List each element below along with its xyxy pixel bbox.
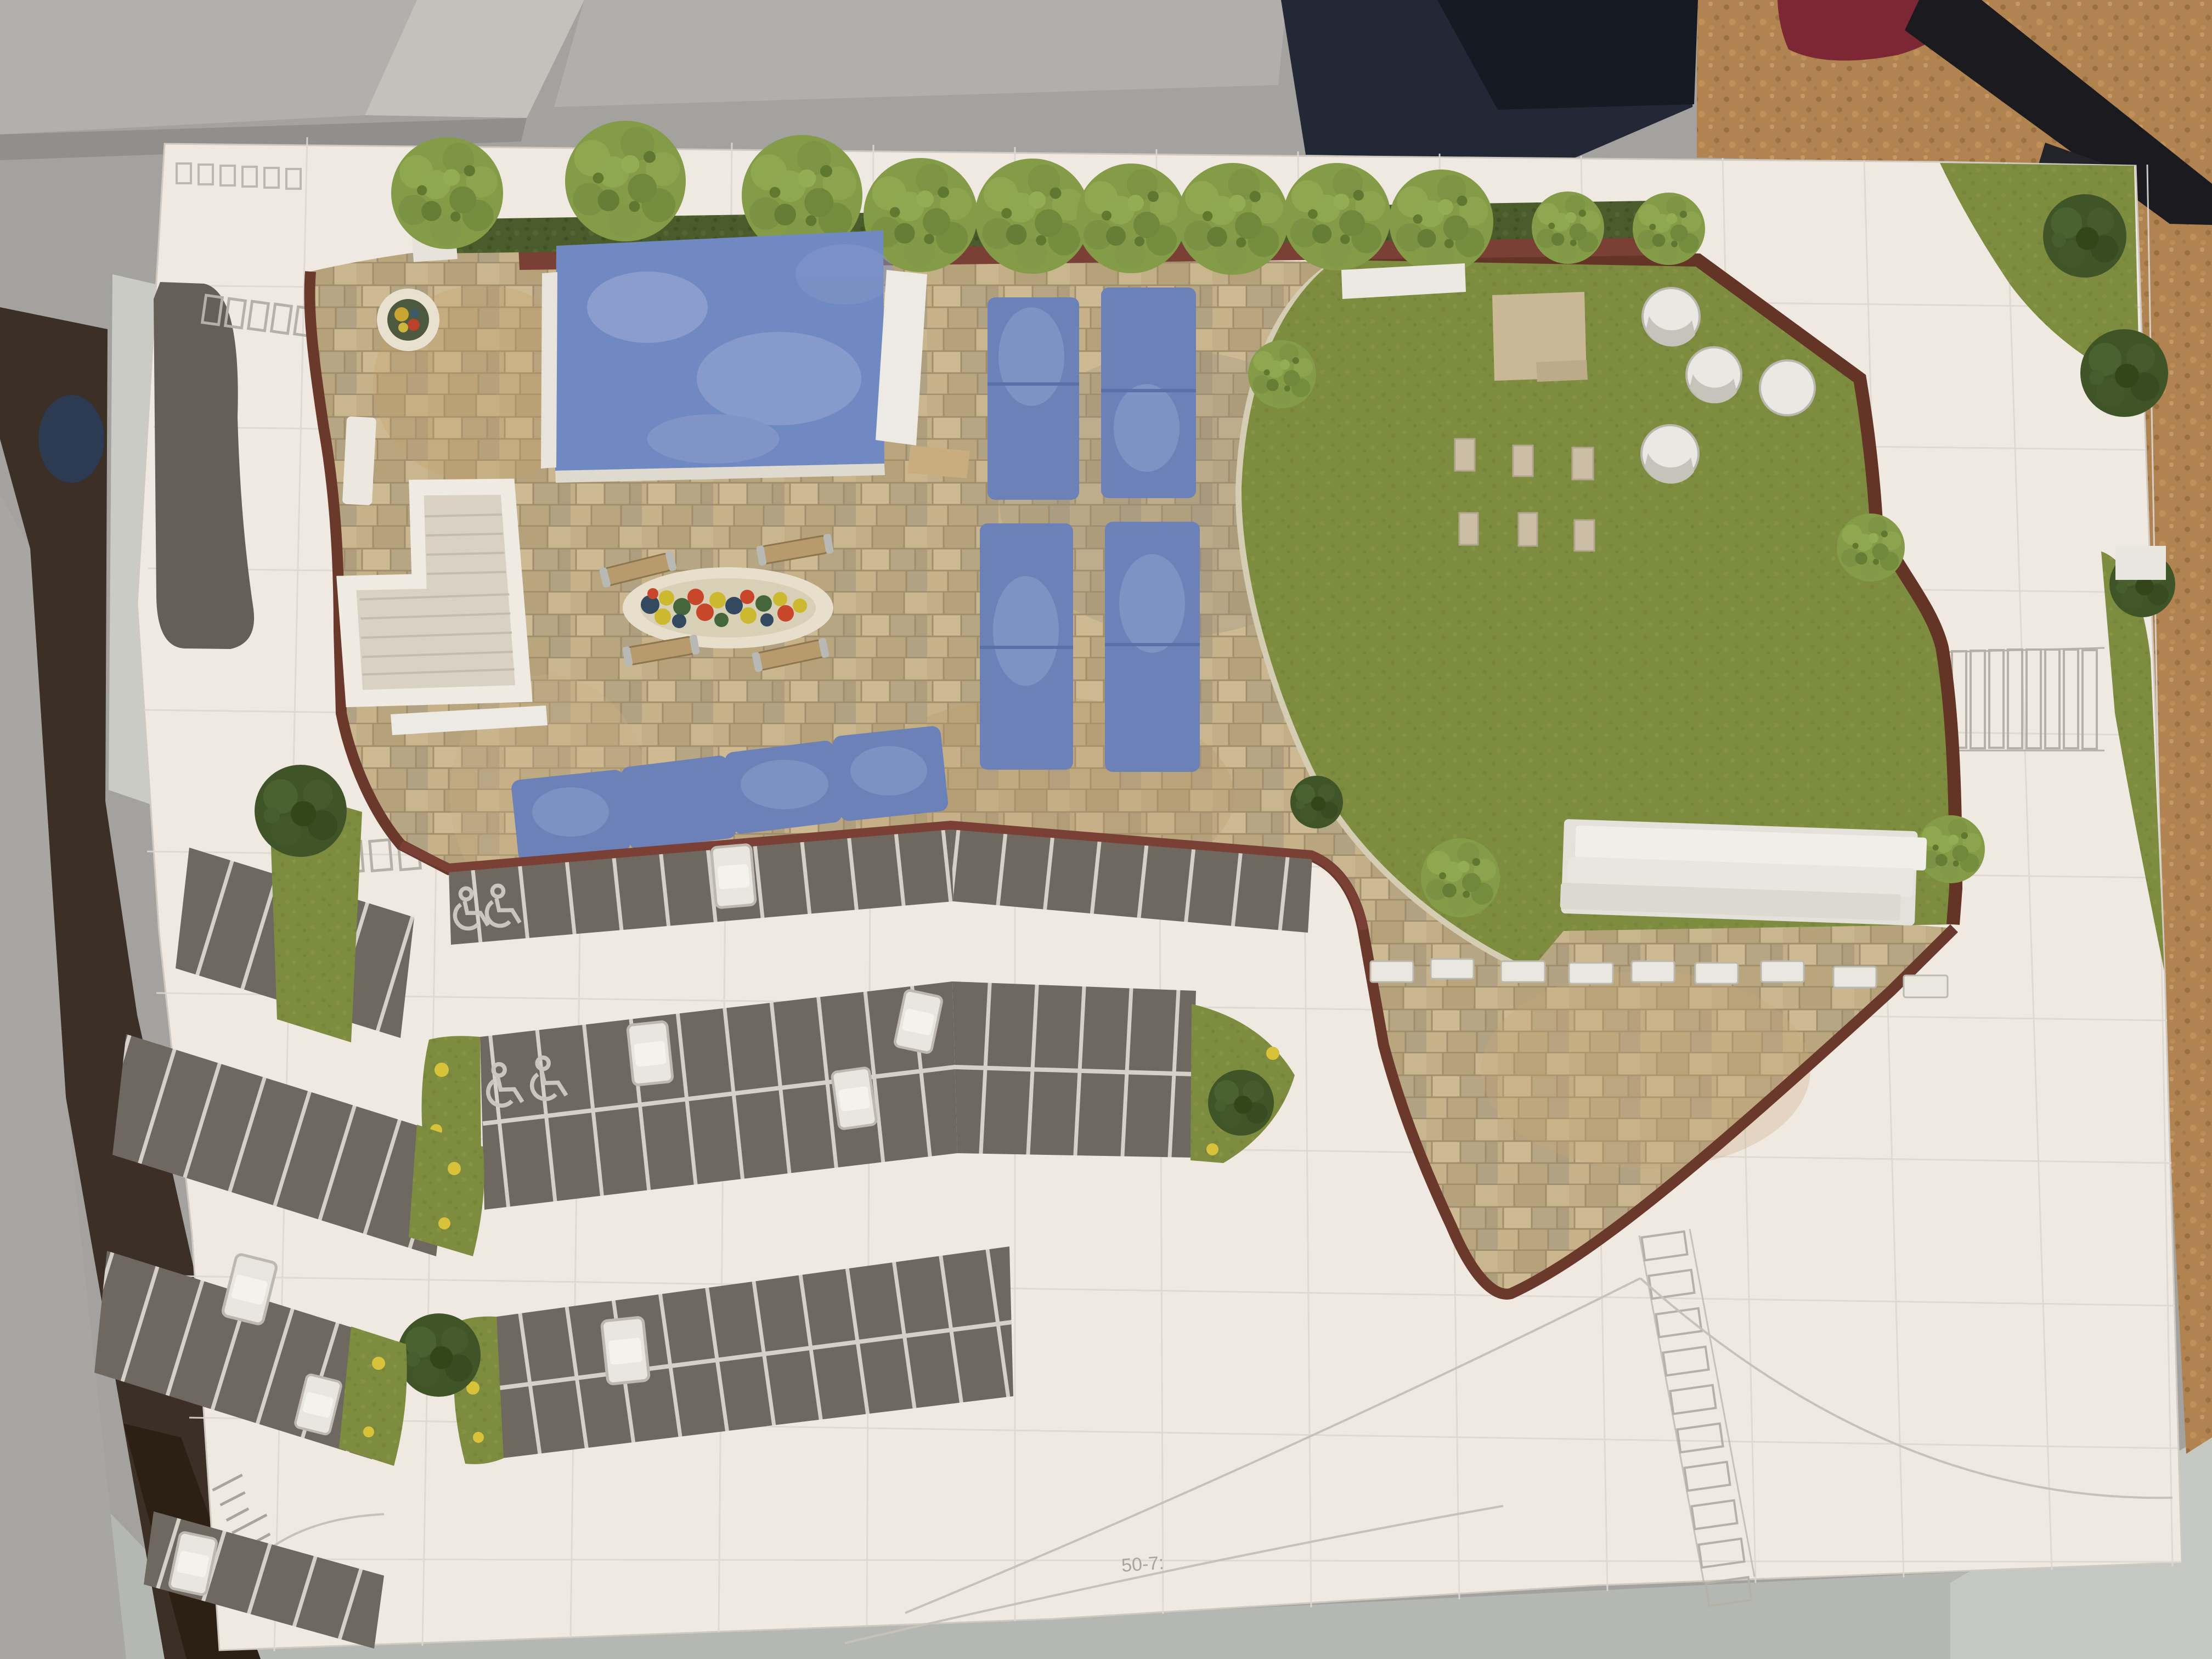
- svg-text:50-7:: 50-7:: [1121, 1553, 1165, 1576]
